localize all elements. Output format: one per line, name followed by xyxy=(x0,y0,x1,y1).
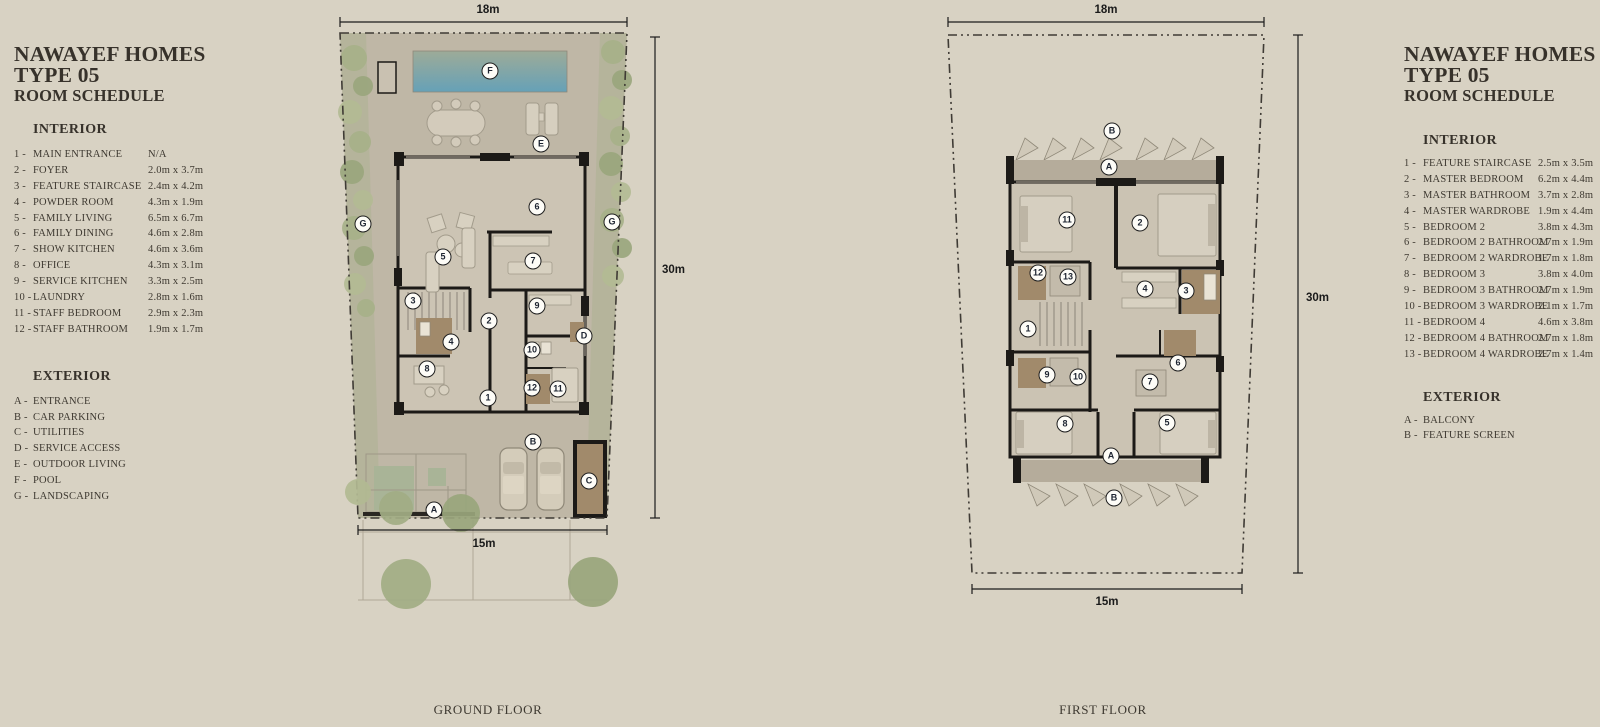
schedule-row: 8 - BEDROOM 3 3.8m x 4.0m xyxy=(1404,269,1600,285)
schedule-row-name: BEDROOM 3 xyxy=(1423,269,1538,280)
first-dim-top: 18m xyxy=(1094,4,1117,16)
room-marker: B xyxy=(1106,490,1123,507)
title-line2: TYPE 05 xyxy=(14,65,244,86)
schedule-row-name: ENTRANCE xyxy=(33,396,148,407)
schedule-row-dim: 2.8m x 1.6m xyxy=(148,292,203,303)
schedule-row-dim: 1.7m x 1.8m xyxy=(1538,253,1593,264)
room-marker: 5 xyxy=(1159,415,1176,432)
schedule-row-name: LANDSCAPING xyxy=(33,491,148,502)
exterior-heading: EXTERIOR xyxy=(1423,390,1600,406)
schedule-row-name: UTILITIES xyxy=(33,427,148,438)
title-line1: NAWAYEF HOMES xyxy=(1404,44,1600,65)
schedule-row-name: FEATURE STAIRCASE xyxy=(1423,158,1538,169)
schedule-row-name: MAIN ENTRANCE xyxy=(33,149,148,160)
schedule-row-name: BEDROOM 2 BATHROOM xyxy=(1423,237,1538,248)
schedule-row-name: POWDER ROOM xyxy=(33,197,148,208)
schedule-row: 7 - BEDROOM 2 WARDROBE 1.7m x 1.8m xyxy=(1404,253,1600,269)
interior-heading: INTERIOR xyxy=(33,122,244,138)
schedule-row-name: SERVICE ACCESS xyxy=(33,443,148,454)
room-marker-label: 2 xyxy=(486,317,491,326)
schedule-row-num: 10 - xyxy=(1404,301,1423,312)
schedule-row-dim: 2.4m x 4.2m xyxy=(148,181,203,192)
schedule-row-name: CAR PARKING xyxy=(33,412,148,423)
schedule-row-num: 5 - xyxy=(14,213,33,224)
schedule-row-num: 2 - xyxy=(14,165,33,176)
schedule-row-dim: 2.1m x 1.7m xyxy=(1538,301,1593,312)
room-marker-label: 6 xyxy=(534,203,539,212)
schedule-row-num: 7 - xyxy=(14,244,33,255)
room-marker: 10 xyxy=(1070,369,1087,386)
room-marker-label: 8 xyxy=(1062,420,1067,429)
room-marker-label: B xyxy=(1109,127,1116,136)
room-marker: 12 xyxy=(1030,265,1047,282)
schedule-row-num: B - xyxy=(14,412,33,423)
schedule-row-name: BALCONY xyxy=(1423,415,1538,426)
room-schedule-right: NAWAYEF HOMES TYPE 05 ROOM SCHEDULE INTE… xyxy=(1404,44,1600,446)
schedule-row-dim: 4.6m x 3.8m xyxy=(1538,317,1593,328)
schedule-row-dim: 4.3m x 1.9m xyxy=(148,197,203,208)
room-marker: G xyxy=(604,214,621,231)
room-marker-label: 11 xyxy=(1062,216,1072,225)
schedule-row-num: 10 - xyxy=(14,292,33,303)
schedule-row-num: 7 - xyxy=(1404,253,1423,264)
title-line3: ROOM SCHEDULE xyxy=(14,86,244,105)
schedule-row-num: 11 - xyxy=(14,308,33,319)
room-marker: 5 xyxy=(435,249,452,266)
schedule-row-dim: 2.7m x 1.9m xyxy=(1538,237,1593,248)
schedule-row-dim: 3.7m x 2.8m xyxy=(1538,190,1593,201)
room-marker: 10 xyxy=(524,342,541,359)
schedule-row-num: 2 - xyxy=(1404,174,1423,185)
schedule-row: 8 - OFFICE 4.3m x 3.1m xyxy=(14,260,244,276)
schedule-row-num: 5 - xyxy=(1404,222,1423,233)
schedule-row: 11 - BEDROOM 4 4.6m x 3.8m xyxy=(1404,317,1600,333)
schedule-row-name: SHOW KITCHEN xyxy=(33,244,148,255)
interior-section-right: INTERIOR 1 - FEATURE STAIRCASE 2.5m x 3.… xyxy=(1404,133,1600,365)
room-marker: A xyxy=(1103,448,1120,465)
schedule-row-name: FAMILY LIVING xyxy=(33,213,148,224)
schedule-row-num: 11 - xyxy=(1404,317,1423,328)
first-floor-label: FIRST FLOOR xyxy=(1059,702,1147,718)
room-marker: 7 xyxy=(525,253,542,270)
room-marker: E xyxy=(533,136,550,153)
schedule-row: 3 - MASTER BATHROOM 3.7m x 2.8m xyxy=(1404,190,1600,206)
schedule-row-num: 12 - xyxy=(14,324,33,335)
ground-floor-plan: 18m 30m 15m GROUND FLOOR F E 6 G G 5 7 3… xyxy=(330,0,710,727)
schedule-row-num: 9 - xyxy=(14,276,33,287)
schedule-row-dim: 1.9m x 4.4m xyxy=(1538,206,1593,217)
schedule-row: 12 - BEDROOM 4 BATHROOM 2.7m x 1.8m xyxy=(1404,333,1600,349)
room-marker-label: 1 xyxy=(485,394,490,403)
first-floor-plan-drawing xyxy=(920,0,1350,620)
room-marker: B xyxy=(525,434,542,451)
first-floor-plan: 18m 30m 15m FIRST FLOOR B A 11 2 12 13 4… xyxy=(920,0,1350,727)
schedule-row-num: 3 - xyxy=(1404,190,1423,201)
room-marker-label: 8 xyxy=(424,365,429,374)
interior-section-left: INTERIOR 1 - MAIN ENTRANCE N/A 2 - FOYER… xyxy=(14,122,244,340)
schedule-row-num: 12 - xyxy=(1404,333,1423,344)
title-line2: TYPE 05 xyxy=(1404,65,1600,86)
room-marker: 3 xyxy=(1178,283,1195,300)
schedule-row-dim: 2.7m x 1.9m xyxy=(1538,285,1593,296)
schedule-row-name: MASTER BEDROOM xyxy=(1423,174,1538,185)
room-marker-label: A xyxy=(1106,163,1113,172)
room-marker-label: 10 xyxy=(527,346,537,355)
schedule-row-name: POOL xyxy=(33,475,148,486)
schedule-row-dim: 6.5m x 6.7m xyxy=(148,213,203,224)
schedule-row: 1 - FEATURE STAIRCASE 2.5m x 3.5m xyxy=(1404,158,1600,174)
room-marker: 2 xyxy=(481,313,498,330)
schedule-row-num: 6 - xyxy=(1404,237,1423,248)
room-marker-label: A xyxy=(431,506,438,515)
room-marker-label: 13 xyxy=(1063,273,1073,282)
schedule-row-name: BEDROOM 3 WARDROBE xyxy=(1423,301,1538,312)
schedule-row-name: OFFICE xyxy=(33,260,148,271)
schedule-row-dim: 4.6m x 3.6m xyxy=(148,244,203,255)
room-marker-label: D xyxy=(581,332,588,341)
schedule-row: A - ENTRANCE xyxy=(14,396,244,412)
schedule-row-name: FOYER xyxy=(33,165,148,176)
room-marker: D xyxy=(576,328,593,345)
title-line1: NAWAYEF HOMES xyxy=(14,44,244,65)
room-marker: A xyxy=(1101,159,1118,176)
schedule-row: D - SERVICE ACCESS xyxy=(14,443,244,459)
schedule-row-num: 8 - xyxy=(14,260,33,271)
schedule-row: 9 - BEDROOM 3 BATHROOM 2.7m x 1.9m xyxy=(1404,285,1600,301)
schedule-row: C - UTILITIES xyxy=(14,427,244,443)
schedule-row: 4 - POWDER ROOM 4.3m x 1.9m xyxy=(14,197,244,213)
schedule-row-num: 4 - xyxy=(14,197,33,208)
schedule-row-num: A - xyxy=(1404,415,1423,426)
sheet-title-right: NAWAYEF HOMES TYPE 05 ROOM SCHEDULE xyxy=(1404,44,1600,105)
room-marker-label: F xyxy=(487,67,493,76)
room-marker: A xyxy=(426,502,443,519)
schedule-row: F - POOL xyxy=(14,475,244,491)
schedule-row: 10 - BEDROOM 3 WARDROBE 2.1m x 1.7m xyxy=(1404,301,1600,317)
exterior-rows-left: A - ENTRANCE B - CAR PARKING C - UTILITI… xyxy=(14,396,244,507)
schedule-row-dim: 4.3m x 3.1m xyxy=(148,260,203,271)
schedule-row: 6 - FAMILY DINING 4.6m x 2.8m xyxy=(14,228,244,244)
room-marker-label: 12 xyxy=(527,384,537,393)
schedule-row-num: 4 - xyxy=(1404,206,1423,217)
schedule-row-name: BEDROOM 4 WARDROBE xyxy=(1423,349,1538,360)
room-schedule-left: NAWAYEF HOMES TYPE 05 ROOM SCHEDULE INTE… xyxy=(14,44,244,507)
schedule-row-name: MASTER BATHROOM xyxy=(1423,190,1538,201)
schedule-row: 2 - FOYER 2.0m x 3.7m xyxy=(14,165,244,181)
schedule-row-name: FEATURE SCREEN xyxy=(1423,430,1538,441)
schedule-row-num: G - xyxy=(14,491,33,502)
room-marker-label: 9 xyxy=(1044,371,1049,380)
schedule-row-num: 9 - xyxy=(1404,285,1423,296)
schedule-row-name: STAFF BATHROOM xyxy=(33,324,148,335)
room-marker-label: C xyxy=(586,477,593,486)
schedule-row: 5 - BEDROOM 2 3.8m x 4.3m xyxy=(1404,222,1600,238)
room-marker: 8 xyxy=(1057,416,1074,433)
schedule-row-num: 13 - xyxy=(1404,349,1423,360)
room-marker: B xyxy=(1104,123,1121,140)
schedule-row: 4 - MASTER WARDROBE 1.9m x 4.4m xyxy=(1404,206,1600,222)
schedule-row-num: A - xyxy=(14,396,33,407)
schedule-row: 12 - STAFF BATHROOM 1.9m x 1.7m xyxy=(14,324,244,340)
room-marker-label: 5 xyxy=(440,253,445,262)
room-marker: G xyxy=(355,216,372,233)
room-marker: 7 xyxy=(1142,374,1159,391)
schedule-row-name: BEDROOM 2 xyxy=(1423,222,1538,233)
schedule-row-num: 1 - xyxy=(14,149,33,160)
schedule-row: 10 - LAUNDRY 2.8m x 1.6m xyxy=(14,292,244,308)
room-marker: 2 xyxy=(1132,215,1149,232)
schedule-row: 2 - MASTER BEDROOM 6.2m x 4.4m xyxy=(1404,174,1600,190)
ground-floor-plan-drawing xyxy=(330,0,710,620)
room-marker: 11 xyxy=(1059,212,1076,229)
room-marker-label: 7 xyxy=(1147,378,1152,387)
schedule-row-num: 1 - xyxy=(1404,158,1423,169)
ground-dim-top: 18m xyxy=(476,4,499,16)
ground-dim-right: 30m xyxy=(662,264,685,276)
schedule-row-name: STAFF BEDROOM xyxy=(33,308,148,319)
schedule-row-name: BEDROOM 4 xyxy=(1423,317,1538,328)
room-marker: 3 xyxy=(405,293,422,310)
schedule-row-dim: 2.7m x 1.4m xyxy=(1538,349,1593,360)
room-marker: 9 xyxy=(1039,367,1056,384)
room-marker-label: A xyxy=(1108,452,1115,461)
room-marker-label: B xyxy=(1111,494,1118,503)
exterior-rows-right: A - BALCONY B - FEATURE SCREEN xyxy=(1404,415,1600,447)
schedule-row-name: BEDROOM 2 WARDROBE xyxy=(1423,253,1538,264)
interior-rows-left: 1 - MAIN ENTRANCE N/A 2 - FOYER 2.0m x 3… xyxy=(14,149,244,340)
room-marker: 8 xyxy=(419,361,436,378)
room-marker: C xyxy=(581,473,598,490)
schedule-row-dim: 4.6m x 2.8m xyxy=(148,228,203,239)
room-marker-label: 9 xyxy=(534,302,539,311)
schedule-row: 13 - BEDROOM 4 WARDROBE 2.7m x 1.4m xyxy=(1404,349,1600,365)
room-marker: 1 xyxy=(480,390,497,407)
interior-rows-right: 1 - FEATURE STAIRCASE 2.5m x 3.5m 2 - MA… xyxy=(1404,158,1600,365)
room-marker-label: 1 xyxy=(1025,325,1030,334)
schedule-row-dim: 3.3m x 2.5m xyxy=(148,276,203,287)
schedule-row: A - BALCONY xyxy=(1404,415,1600,431)
room-marker: 6 xyxy=(1170,355,1187,372)
room-marker: 9 xyxy=(529,298,546,315)
schedule-row-num: E - xyxy=(14,459,33,470)
schedule-row-name: OUTDOOR LIVING xyxy=(33,459,148,470)
room-marker: 6 xyxy=(529,199,546,216)
room-marker: F xyxy=(482,63,499,80)
schedule-row: 3 - FEATURE STAIRCASE 2.4m x 4.2m xyxy=(14,181,244,197)
schedule-row-num: 3 - xyxy=(14,181,33,192)
schedule-row-name: BEDROOM 3 BATHROOM xyxy=(1423,285,1538,296)
room-marker-label: 10 xyxy=(1073,373,1083,382)
schedule-row: 7 - SHOW KITCHEN 4.6m x 3.6m xyxy=(14,244,244,260)
exterior-section-left: EXTERIOR A - ENTRANCE B - CAR PARKING C … xyxy=(14,369,244,507)
room-marker: 13 xyxy=(1060,269,1077,286)
schedule-row: 5 - FAMILY LIVING 6.5m x 6.7m xyxy=(14,213,244,229)
schedule-row-dim: 2.9m x 2.3m xyxy=(148,308,203,319)
schedule-row-name: SERVICE KITCHEN xyxy=(33,276,148,287)
room-marker: 4 xyxy=(1137,281,1154,298)
schedule-row-name: BEDROOM 4 BATHROOM xyxy=(1423,333,1538,344)
schedule-row-name: LAUNDRY xyxy=(33,292,148,303)
schedule-row-dim: 2.7m x 1.8m xyxy=(1538,333,1593,344)
first-dim-right: 30m xyxy=(1306,292,1329,304)
schedule-row-num: C - xyxy=(14,427,33,438)
room-marker-label: 6 xyxy=(1175,359,1180,368)
room-marker-label: G xyxy=(359,220,366,229)
schedule-row-num: F - xyxy=(14,475,33,486)
schedule-row: 1 - MAIN ENTRANCE N/A xyxy=(14,149,244,165)
schedule-row-num: D - xyxy=(14,443,33,454)
room-marker-label: 3 xyxy=(410,297,415,306)
schedule-row: B - CAR PARKING xyxy=(14,412,244,428)
room-marker-label: E xyxy=(538,140,544,149)
schedule-row: 6 - BEDROOM 2 BATHROOM 2.7m x 1.9m xyxy=(1404,237,1600,253)
room-marker: 1 xyxy=(1020,321,1037,338)
room-marker: 4 xyxy=(443,334,460,351)
exterior-section-right: EXTERIOR A - BALCONY B - FEATURE SCREEN xyxy=(1404,390,1600,447)
ground-floor-label: GROUND FLOOR xyxy=(434,702,543,718)
room-marker-label: 2 xyxy=(1137,219,1142,228)
room-marker-label: 7 xyxy=(530,257,535,266)
schedule-row-dim: 1.9m x 1.7m xyxy=(148,324,203,335)
schedule-row: G - LANDSCAPING xyxy=(14,491,244,507)
schedule-row-name: FAMILY DINING xyxy=(33,228,148,239)
room-marker-label: 12 xyxy=(1033,269,1043,278)
room-marker-label: 11 xyxy=(553,385,563,394)
schedule-row-dim: N/A xyxy=(148,149,167,160)
schedule-row: E - OUTDOOR LIVING xyxy=(14,459,244,475)
schedule-row-name: FEATURE STAIRCASE xyxy=(33,181,148,192)
room-marker: 11 xyxy=(550,381,567,398)
schedule-row-dim: 3.8m x 4.0m xyxy=(1538,269,1593,280)
exterior-heading: EXTERIOR xyxy=(33,369,244,385)
schedule-row-dim: 3.8m x 4.3m xyxy=(1538,222,1593,233)
schedule-row-dim: 2.5m x 3.5m xyxy=(1538,158,1593,169)
room-marker-label: 4 xyxy=(1142,285,1147,294)
schedule-row-num: B - xyxy=(1404,430,1423,441)
room-marker-label: 3 xyxy=(1183,287,1188,296)
schedule-row-dim: 2.0m x 3.7m xyxy=(148,165,203,176)
schedule-row-num: 8 - xyxy=(1404,269,1423,280)
schedule-row: B - FEATURE SCREEN xyxy=(1404,430,1600,446)
schedule-row: 9 - SERVICE KITCHEN 3.3m x 2.5m xyxy=(14,276,244,292)
room-marker-label: 5 xyxy=(1164,419,1169,428)
room-marker-label: B xyxy=(530,438,537,447)
interior-heading: INTERIOR xyxy=(1423,133,1600,149)
schedule-row-num: 6 - xyxy=(14,228,33,239)
schedule-row-name: MASTER WARDROBE xyxy=(1423,206,1538,217)
schedule-row: 11 - STAFF BEDROOM 2.9m x 2.3m xyxy=(14,308,244,324)
room-marker-label: G xyxy=(608,218,615,227)
room-marker: 12 xyxy=(524,380,541,397)
title-line3: ROOM SCHEDULE xyxy=(1404,86,1600,105)
sheet-title-left: NAWAYEF HOMES TYPE 05 ROOM SCHEDULE xyxy=(14,44,244,105)
schedule-row-dim: 6.2m x 4.4m xyxy=(1538,174,1593,185)
first-dim-bottom: 15m xyxy=(1095,596,1118,608)
room-marker-label: 4 xyxy=(448,338,453,347)
ground-dim-bottom: 15m xyxy=(472,538,495,550)
floorplan-sheet: { "colors":{ "page_background":"#d8d2c3"… xyxy=(0,0,1600,727)
